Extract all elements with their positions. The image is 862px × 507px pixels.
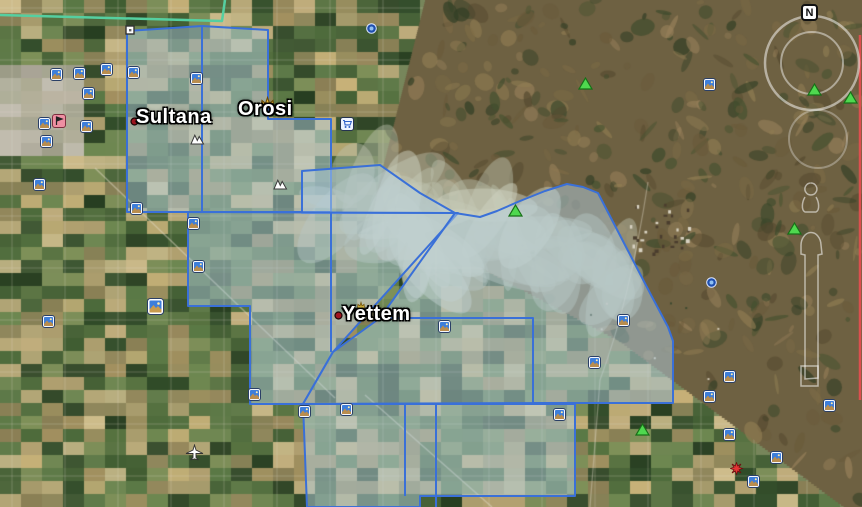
water-tank-outline bbox=[802, 183, 818, 212]
teal-district-edge bbox=[0, 0, 225, 21]
satellite-map[interactable]: SultanaOrosiYettem N bbox=[0, 0, 862, 507]
district-overlays-layer bbox=[0, 0, 862, 507]
compass-outer-ring bbox=[765, 16, 859, 110]
airstrip-outline bbox=[801, 233, 822, 379]
compass-secondary-ring bbox=[789, 110, 847, 168]
district-northwest-wedge-block[interactable] bbox=[302, 165, 455, 213]
district-sultana-west-block[interactable] bbox=[127, 26, 202, 212]
compass-inner-ring bbox=[781, 32, 843, 94]
compass-north-badge[interactable]: N bbox=[801, 4, 818, 21]
parcel-square-outline bbox=[801, 366, 818, 386]
district-south-block[interactable] bbox=[303, 404, 575, 507]
